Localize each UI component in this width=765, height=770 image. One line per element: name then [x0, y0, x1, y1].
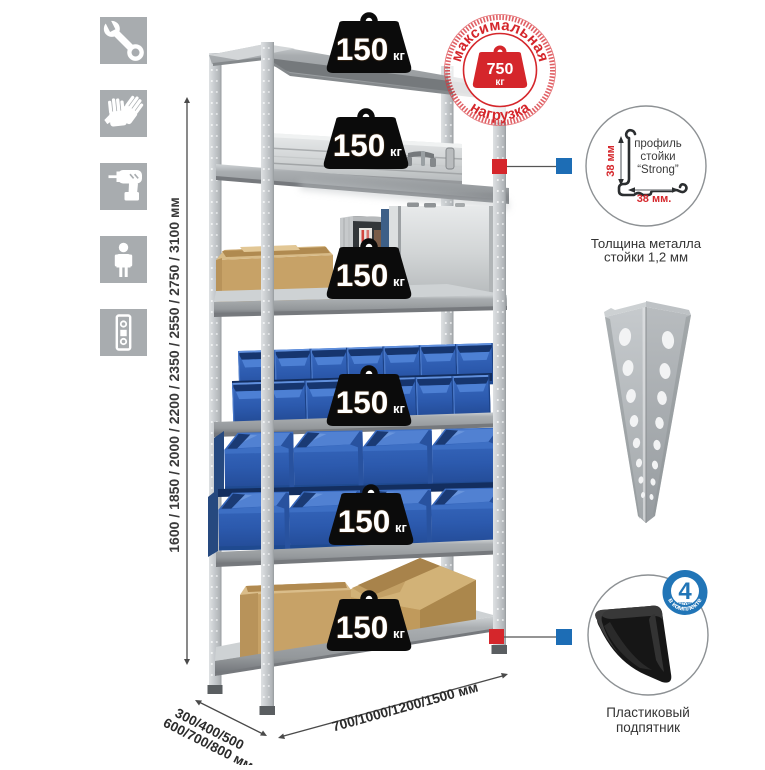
svg-text:стойки: стойки [640, 151, 675, 163]
svg-text:Пластиковый: Пластиковый [606, 705, 690, 720]
svg-text:стойки 1,2 мм: стойки 1,2 мм [604, 250, 688, 265]
svg-text:38 мм.: 38 мм. [637, 193, 672, 205]
svg-text:1600 / 1850 / 2000 / 2200 / 23: 1600 / 1850 / 2000 / 2200 / 2350 / 2550 … [166, 197, 182, 552]
svg-text:38 мм: 38 мм [605, 145, 617, 177]
svg-text:кг: кг [495, 77, 504, 88]
svg-text:750: 750 [487, 61, 514, 78]
svg-text:подпятник: подпятник [616, 720, 680, 735]
svg-text:профиль: профиль [634, 138, 682, 150]
svg-text:“Strong”: “Strong” [637, 164, 679, 176]
